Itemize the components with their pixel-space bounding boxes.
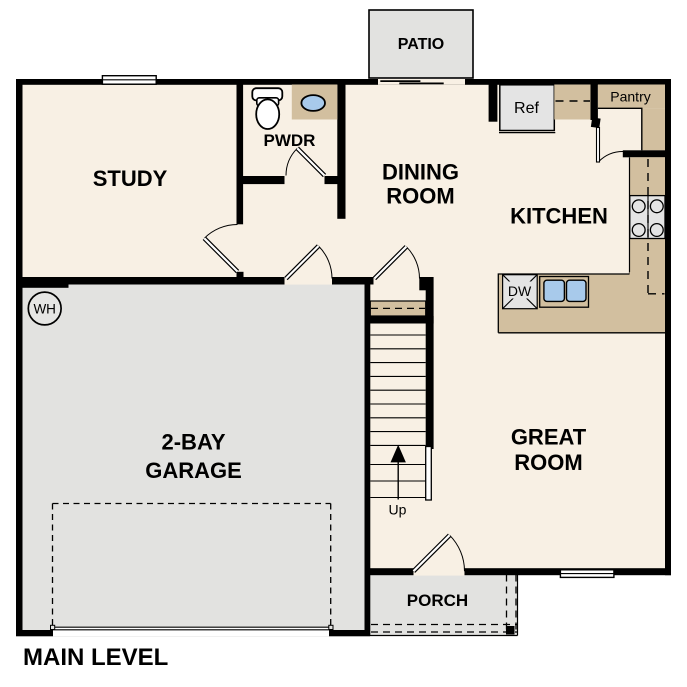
- svg-text:ROOM: ROOM: [514, 450, 582, 475]
- svg-text:KITCHEN: KITCHEN: [510, 204, 608, 229]
- svg-text:PATIO: PATIO: [398, 36, 445, 53]
- svg-text:PORCH: PORCH: [407, 591, 468, 610]
- svg-text:Ref: Ref: [514, 100, 539, 117]
- svg-text:WH: WH: [33, 302, 56, 317]
- svg-text:DW: DW: [508, 283, 532, 299]
- svg-text:STUDY: STUDY: [93, 166, 168, 191]
- svg-text:PWDR: PWDR: [264, 131, 316, 150]
- svg-text:2-BAY: 2-BAY: [162, 430, 226, 455]
- svg-text:GREAT: GREAT: [511, 425, 587, 450]
- svg-text:GARAGE: GARAGE: [145, 458, 242, 483]
- svg-text:DINING: DINING: [382, 160, 459, 185]
- svg-text:MAIN LEVEL: MAIN LEVEL: [23, 644, 168, 671]
- svg-text:Pantry: Pantry: [610, 89, 650, 105]
- svg-text:ROOM: ROOM: [386, 184, 454, 209]
- svg-text:Up: Up: [389, 502, 407, 518]
